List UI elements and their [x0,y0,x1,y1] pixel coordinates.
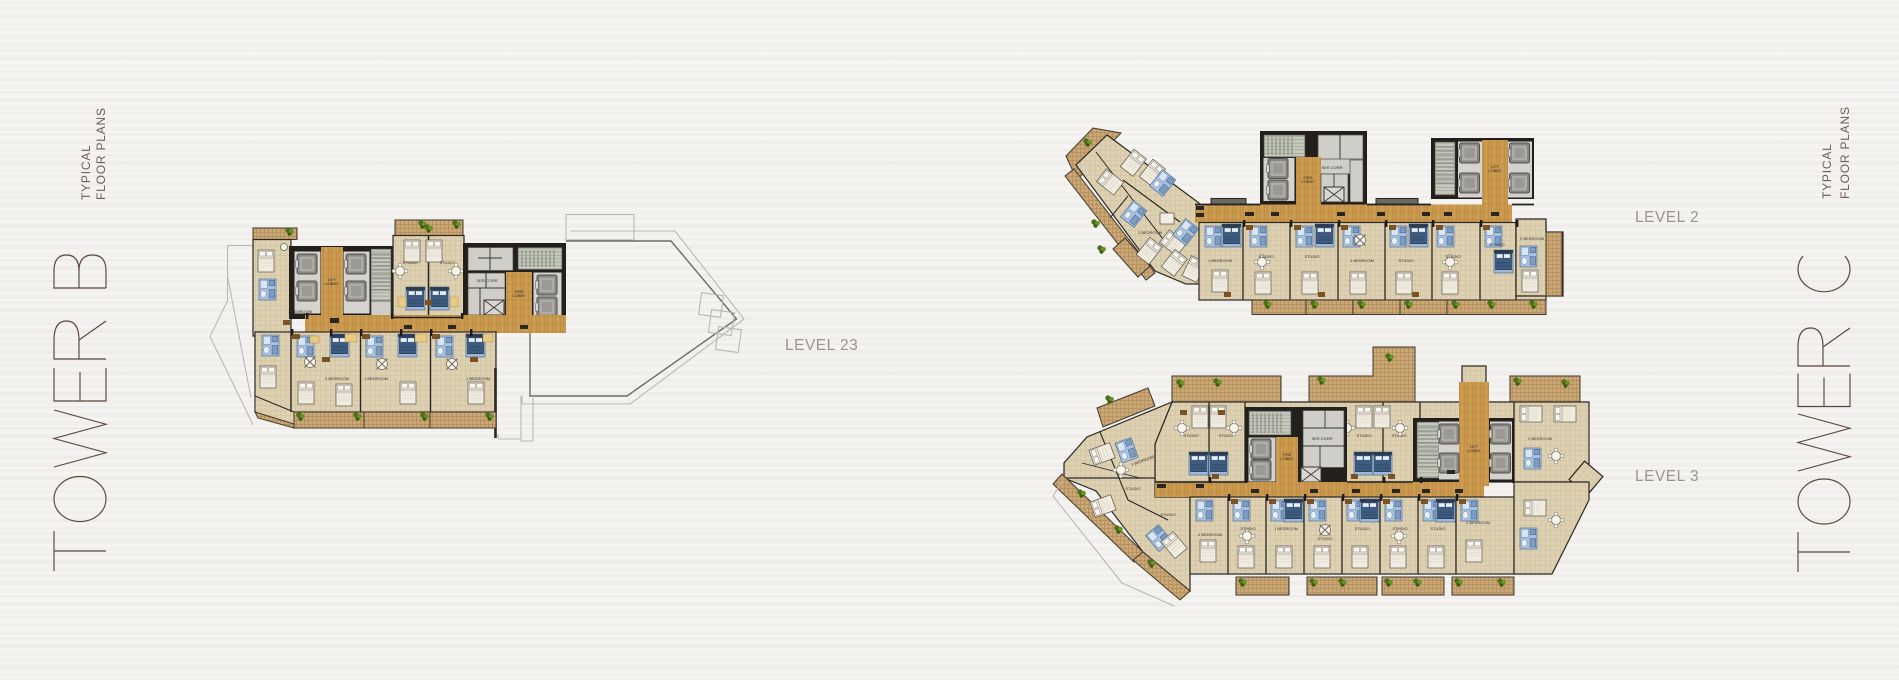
svg-text:STUDIO: STUDIO [1125,486,1140,491]
svg-text:STUDIO: STUDIO [1183,433,1198,438]
svg-text:STUDIO: STUDIO [1258,254,1273,259]
svg-text:STUDIO: STUDIO [1392,526,1407,531]
svg-text:STUDIO: STUDIO [1160,512,1175,517]
svg-text:SER.CORR: SER.CORR [1311,436,1332,441]
svg-text:STUDIO: STUDIO [1218,433,1233,438]
svg-text:SER.CORR: SER.CORR [476,278,497,283]
svg-text:FLOOR PLANS: FLOOR PLANS [1838,106,1852,199]
svg-text:LEVEL 2: LEVEL 2 [1635,209,1699,226]
svg-text:1 BEDROOM: 1 BEDROOM [466,376,490,381]
svg-text:LEVEL 3: LEVEL 3 [1635,468,1699,485]
svg-text:FLOOR PLANS: FLOOR PLANS [94,107,108,200]
svg-text:1 BEDROOM: 1 BEDROOM [288,309,312,314]
svg-text:TYPICAL: TYPICAL [1820,143,1834,199]
svg-text:LOBBY: LOBBY [1467,448,1481,453]
svg-text:2 BEDROOM: 2 BEDROOM [1138,230,1162,235]
svg-text:LOBBY: LOBBY [1488,168,1502,173]
svg-text:TYPICAL: TYPICAL [79,144,93,200]
svg-text:LEVEL 23: LEVEL 23 [785,337,858,354]
svg-text:STUDIO: STUDIO [1317,536,1332,541]
svg-text:1 BEDROOM: 1 BEDROOM [1350,258,1374,263]
svg-text:STUDIO: STUDIO [1430,526,1445,531]
svg-text:2 BEDROOM: 2 BEDROOM [325,376,349,381]
svg-text:2 BEDROOM: 2 BEDROOM [1520,236,1544,241]
svg-text:STUDIO: STUDIO [1398,258,1413,263]
svg-text:STUDIO: STUDIO [1445,254,1460,259]
svg-text:2 BEDROOM: 2 BEDROOM [1528,436,1552,441]
svg-text:LOBBY: LOBBY [1280,456,1294,461]
svg-text:1 BEDROOM: 1 BEDROOM [1274,526,1298,531]
svg-text:1 BEDROOM: 1 BEDROOM [364,376,388,381]
svg-text:1 BEDROOM: 1 BEDROOM [1208,258,1232,263]
svg-text:2 BEDROOM: 2 BEDROOM [1466,520,1490,525]
svg-text:LOBBY: LOBBY [512,293,526,298]
svg-text:STUDIO: STUDIO [1354,526,1369,531]
svg-text:STUDIO: STUDIO [1304,254,1319,259]
svg-text:STUDIO: STUDIO [1356,433,1371,438]
svg-text:2 BEDROOM: 2 BEDROOM [1198,532,1222,537]
svg-text:SER.CORR: SER.CORR [1321,165,1342,170]
svg-text:STUDIO: STUDIO [1489,242,1504,247]
svg-text:STUDIO: STUDIO [1240,526,1255,531]
svg-text:LOBBY: LOBBY [325,281,339,286]
svg-text:LOBBY: LOBBY [1301,179,1315,184]
svg-text:STUDIO: STUDIO [439,260,454,265]
svg-text:STUDIO: STUDIO [402,260,417,265]
